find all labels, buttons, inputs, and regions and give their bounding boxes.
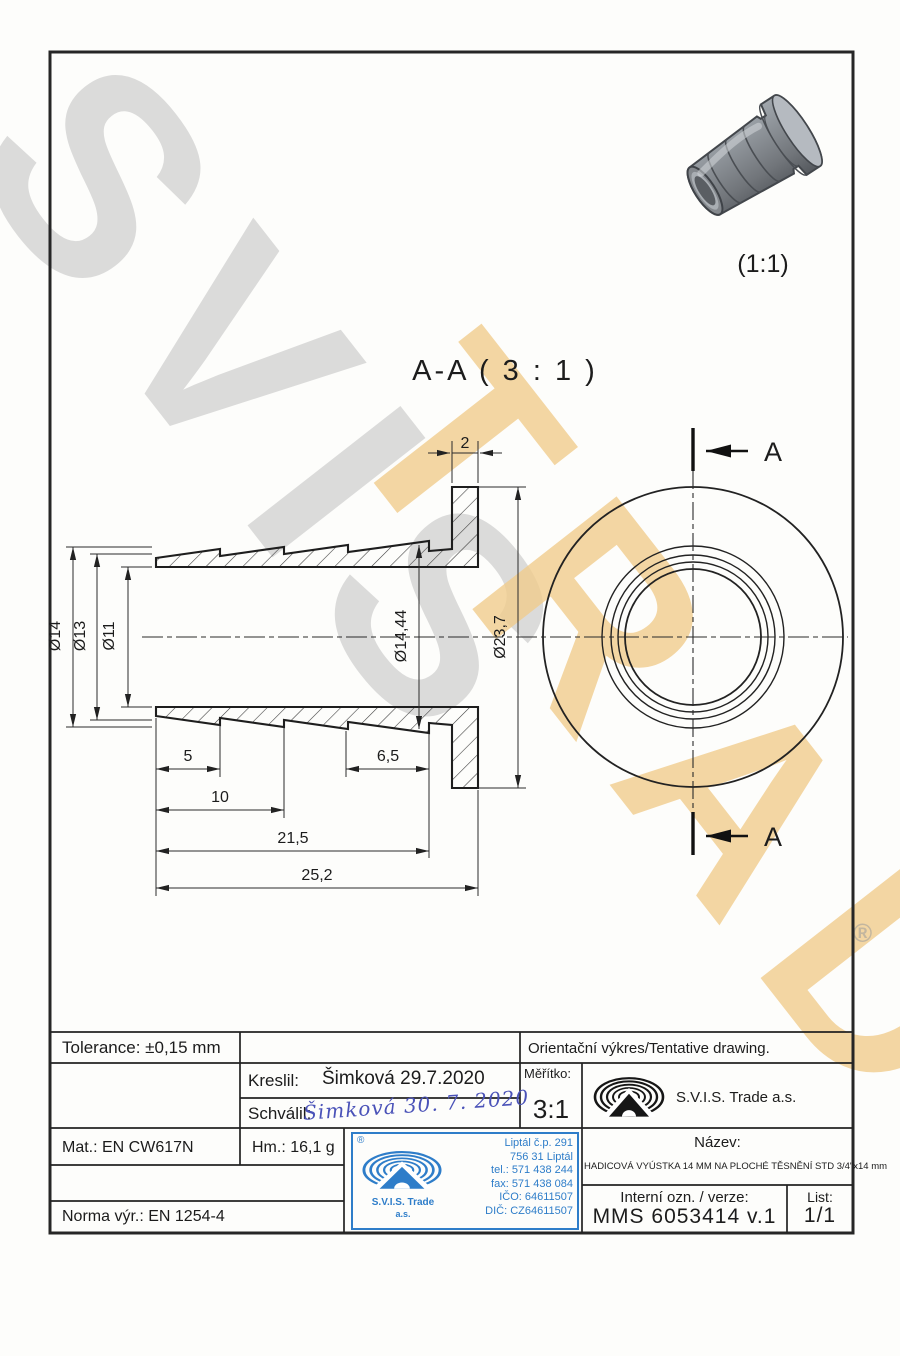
dim-len-10: 10 — [211, 789, 229, 806]
dim-len-5: 5 — [184, 748, 193, 765]
material-value: Mat.: EN CW617N — [62, 1139, 194, 1157]
company-name: S.V.I.S. Trade a.s. — [676, 1089, 796, 1106]
schvalil-label: Schválil: — [248, 1104, 311, 1124]
stamp-registered-icon: ® — [357, 1135, 364, 1146]
dim-len-25-2: 25,2 — [301, 867, 332, 884]
nazev-label: Název: — [582, 1134, 853, 1151]
stamp-address-line: 756 31 Liptál — [440, 1151, 573, 1165]
kreslil-value: Šimková 29.7.2020 — [322, 1068, 485, 1090]
dim-len-6-5: 6,5 — [377, 748, 399, 765]
stamp-address-line: fax: 571 438 084 — [440, 1178, 573, 1192]
dim-dia-outer: Ø14 — [47, 621, 64, 651]
dim-dia-barb: Ø14,44 — [393, 610, 410, 663]
cut-label-top: A — [764, 437, 782, 467]
list-label: List: — [787, 1189, 853, 1205]
dim-dia-bore: Ø11 — [101, 621, 118, 650]
mass-value: Hm.: 16,1 g — [252, 1139, 335, 1157]
stamp-logo-icon — [364, 1152, 440, 1189]
dim-dia-flange: Ø23,7 — [492, 615, 509, 659]
tolerance-label: Tolerance: ±0,15 mm — [62, 1038, 221, 1058]
cut-label-bottom: A — [764, 822, 782, 852]
kreslil-label: Kreslil: — [248, 1071, 299, 1091]
dim-dia-mid: Ø13 — [72, 621, 89, 651]
norma-value: Norma výr.: EN 1254-4 — [62, 1208, 225, 1226]
company-logo-icon — [595, 1078, 663, 1117]
orientation-note: Orientační výkres/Tentative drawing. — [528, 1040, 770, 1057]
interni-label: Interní ozn. / verze: — [582, 1189, 787, 1206]
photo-scale-label: (1:1) — [737, 250, 788, 278]
stamp-address-line: tel.: 571 438 244 — [440, 1164, 573, 1178]
cutting-plane: A A — [693, 428, 782, 855]
dim-flange-thickness: 2 — [461, 435, 470, 452]
stamp-address-line: DIČ: CZ64611507 — [440, 1205, 573, 1219]
list-value: 1/1 — [787, 1204, 853, 1228]
stamp-company-line2: a.s. — [356, 1209, 450, 1219]
stamp-address-line: Liptál č.p. 291 — [440, 1137, 573, 1151]
nazev-value: HADICOVÁ VYÚSTKA 14 MM NA PLOCHÉ TĚSNĚNÍ… — [584, 1161, 851, 1172]
section-bottom-wall — [156, 707, 478, 788]
interni-value: MMS 6053414 v.1 — [582, 1205, 787, 1229]
dimension-labels: Ø14 Ø13 Ø11 Ø14,44 Ø23,7 2 5 6,5 10 21,5… — [47, 435, 509, 884]
dim-len-21-5: 21,5 — [277, 830, 308, 847]
section-top-wall — [156, 487, 478, 567]
meritko-value: 3:1 — [520, 1094, 582, 1125]
section-title: A-A ( 3 : 1 ) — [412, 355, 598, 387]
meritko-label: Měřítko: — [524, 1066, 571, 1081]
stamp-address-line: IČO: 64611507 — [440, 1191, 573, 1205]
page: { "watermark": { "text_primary": "SVIS",… — [0, 0, 900, 1288]
part-photo — [674, 90, 830, 232]
stamp-company-line1: S.V.I.S. Trade — [356, 1197, 450, 1208]
